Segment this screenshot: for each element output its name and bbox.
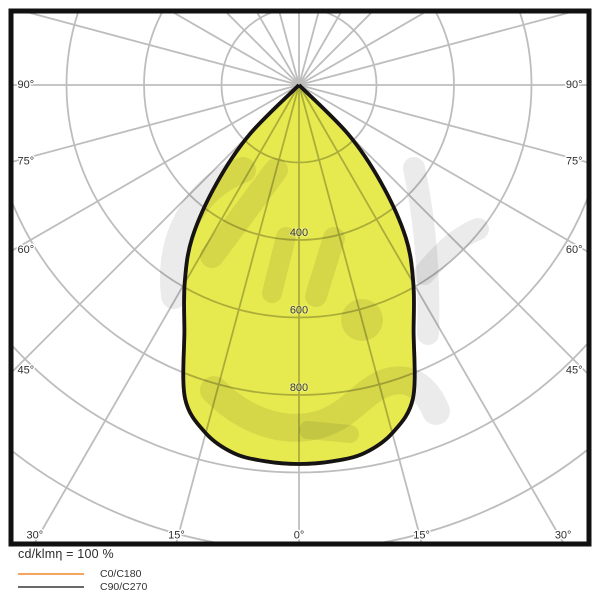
legend-line-c90-c270 <box>18 586 84 588</box>
legend-row-c0-c180: C0/C180 <box>18 568 578 580</box>
watermark-stroke <box>414 168 428 334</box>
legend-label-c90-c270: C90/C270 <box>100 581 147 593</box>
angle-tick-label-bottom: 15° <box>413 530 430 542</box>
intensity-distribution-fill <box>183 85 414 464</box>
angle-tick-label-bottom: 0° <box>294 530 305 542</box>
radial-tick-label: 400 <box>290 227 308 239</box>
legend-line-c0-c180 <box>18 573 84 575</box>
photometric-diagram-page: 40060080090°90°75°75°60°60°45°45°30°15°0… <box>0 0 600 600</box>
legend: cd/klmη = 100 % C0/C180 C90/C270 <box>18 547 578 594</box>
angle-tick-label-right: 90° <box>566 79 583 91</box>
radial-tick-label: 600 <box>290 305 308 317</box>
angle-tick-label-left: 60° <box>18 244 35 256</box>
chart-canvas: 40060080090°90°75°75°60°60°45°45°30°15°0… <box>0 0 600 600</box>
angle-tick-label-left: 45° <box>18 365 35 377</box>
angle-tick-label-right: 45° <box>566 365 583 377</box>
angle-tick-label-left: 75° <box>18 155 35 167</box>
polar-photometric-chart: 40060080090°90°75°75°60°60°45°45°30°15°0… <box>0 0 600 600</box>
angle-tick-label-left: 90° <box>18 79 35 91</box>
radial-tick-label: 800 <box>290 382 308 394</box>
angle-tick-label-bottom: 30° <box>27 530 44 542</box>
legend-rows: C0/C180 C90/C270 <box>18 568 578 593</box>
angle-tick-label-right: 60° <box>566 244 583 256</box>
angle-tick-label-bottom: 30° <box>555 530 572 542</box>
angle-tick-label-right: 75° <box>566 155 583 167</box>
angle-tick-label-bottom: 15° <box>168 530 185 542</box>
legend-row-c90-c270: C90/C270 <box>18 581 578 593</box>
legend-label-c0-c180: C0/C180 <box>100 568 141 580</box>
legend-title: cd/klmη = 100 % <box>18 547 578 561</box>
